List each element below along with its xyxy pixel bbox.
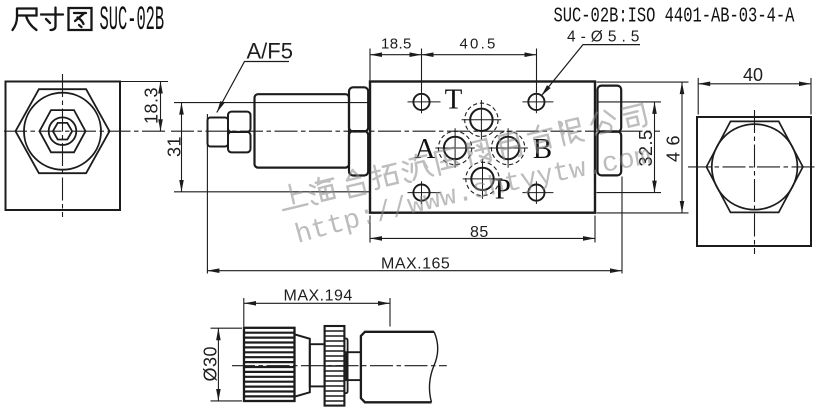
svg-text:46: 46 xyxy=(664,135,684,162)
svg-text:31: 31 xyxy=(165,136,185,157)
svg-text:Ø30: Ø30 xyxy=(201,346,221,382)
svg-text:18.3: 18.3 xyxy=(142,87,162,124)
svg-text:SUC-02B: SUC-02B xyxy=(100,1,165,40)
svg-text:85: 85 xyxy=(470,224,489,241)
svg-text:A/F5: A/F5 xyxy=(247,39,293,64)
svg-text:T: T xyxy=(445,84,463,116)
svg-text:A: A xyxy=(415,133,436,165)
svg-text:40: 40 xyxy=(743,65,763,85)
svg-text:4-Ø5.5: 4-Ø5.5 xyxy=(567,29,644,46)
svg-text:SUC-02B:ISO 4401-AB-03-4-A: SUC-02B:ISO 4401-AB-03-4-A xyxy=(554,3,795,28)
svg-text:40.5: 40.5 xyxy=(460,36,498,53)
svg-text:MAX.165: MAX.165 xyxy=(381,256,450,273)
svg-text:18.5: 18.5 xyxy=(381,36,412,53)
svg-text:MAX.194: MAX.194 xyxy=(284,288,353,305)
